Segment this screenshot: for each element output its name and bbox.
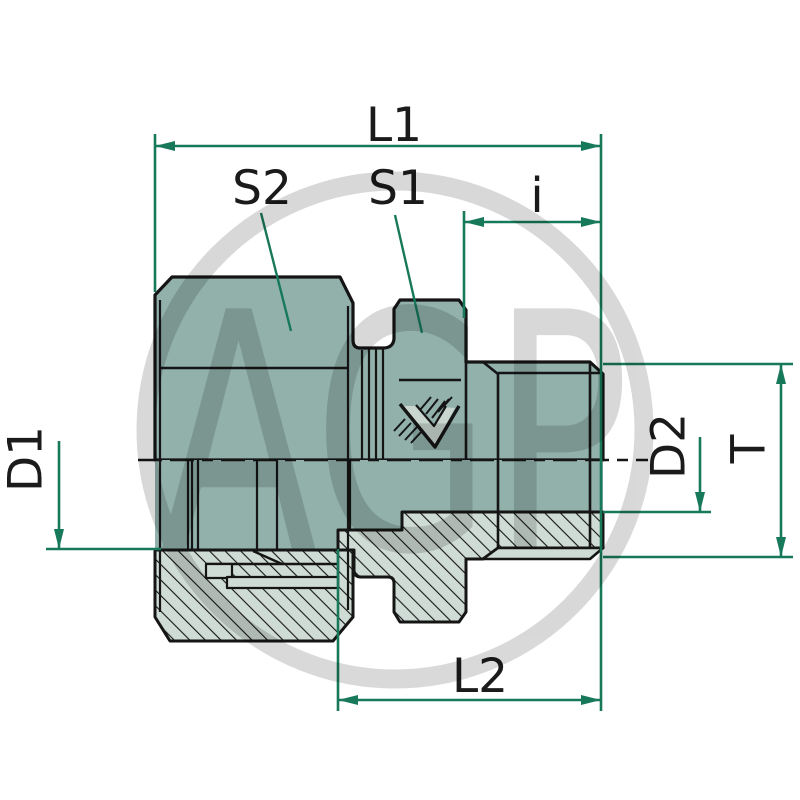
watermark-text: AGP <box>160 243 630 627</box>
arrow-l1-left <box>155 141 175 151</box>
arrow-d1-down <box>54 529 64 549</box>
arrow-t-down <box>776 537 786 557</box>
arrow-i-left <box>464 217 484 227</box>
fitting-drawing-page: L1 S2 S1 i L2 D1 D2 T AGP <box>0 0 800 800</box>
arrow-l1-right <box>581 141 601 151</box>
watermark: AGP <box>146 181 644 679</box>
arrow-d2-down <box>695 492 705 512</box>
dimension-label-t: T <box>722 434 777 464</box>
dimension-label-d1: D1 <box>0 426 54 492</box>
arrow-t-up <box>776 364 786 384</box>
fitting-technical-drawing: L1 S2 S1 i L2 D1 D2 T AGP <box>0 0 800 800</box>
arrow-l2-right <box>581 695 601 705</box>
arrow-l2-left <box>338 695 358 705</box>
arrow-i-right <box>581 217 601 227</box>
dimension-label-l1: L1 <box>366 98 422 153</box>
